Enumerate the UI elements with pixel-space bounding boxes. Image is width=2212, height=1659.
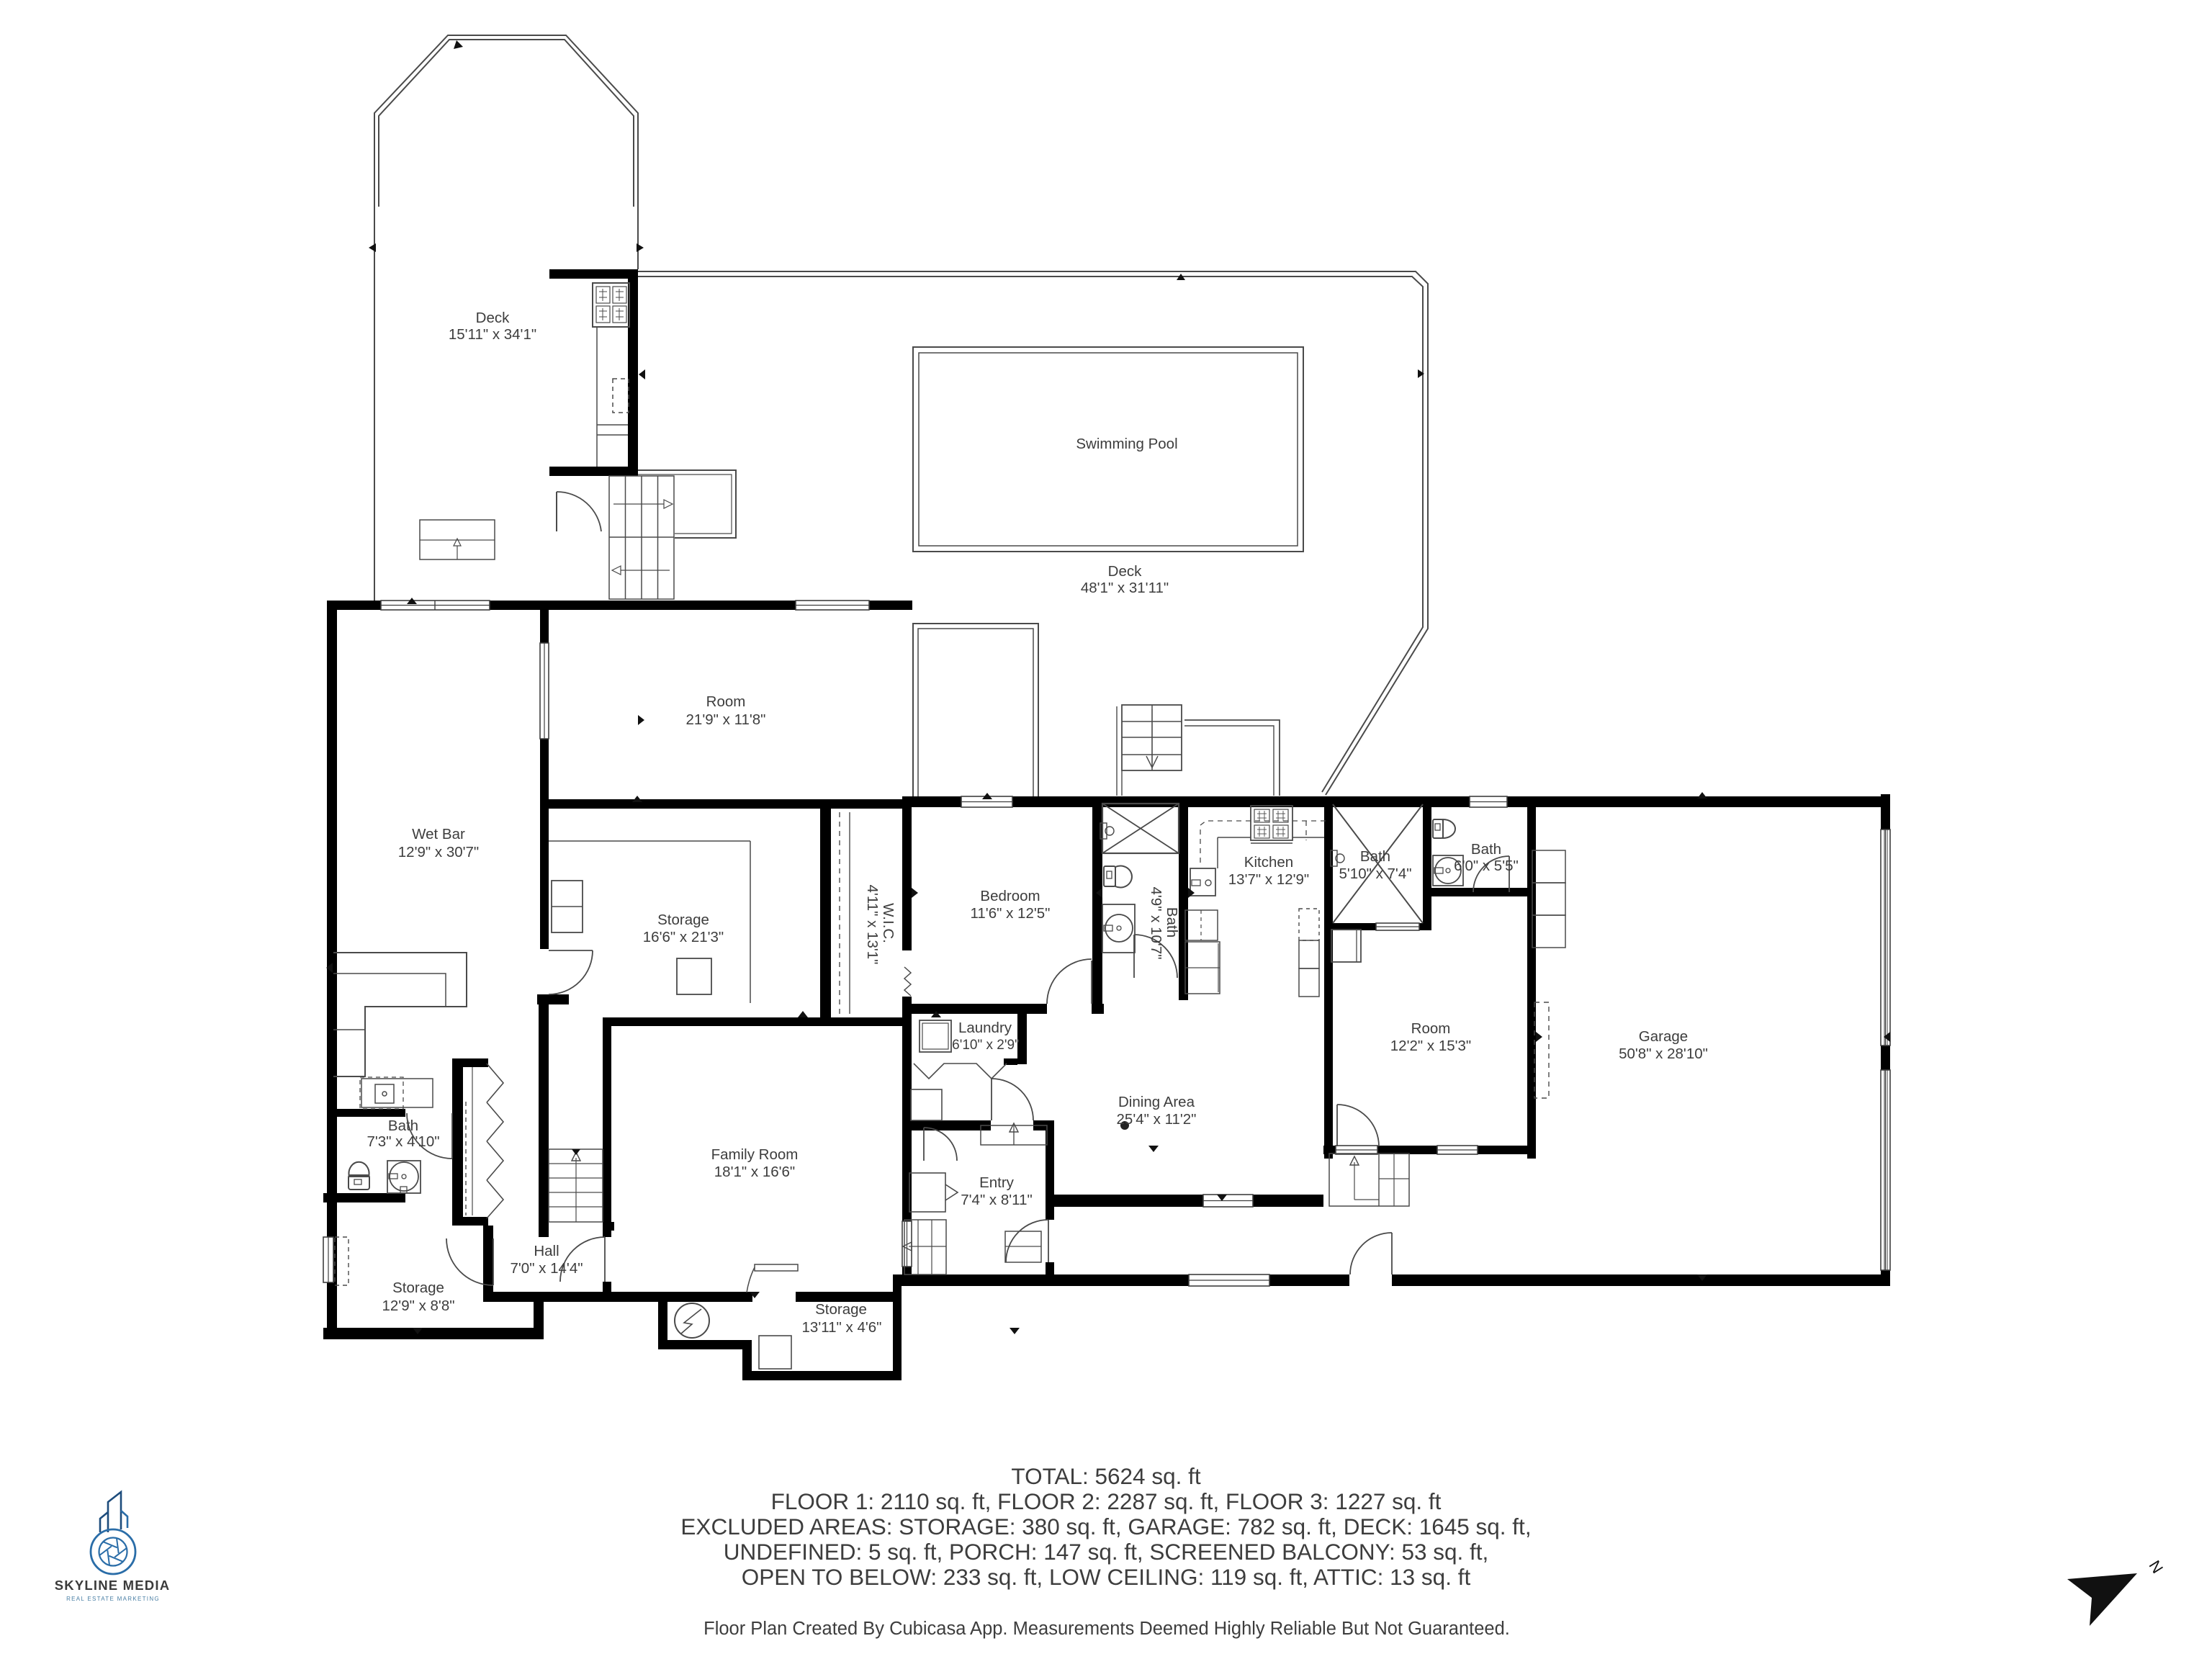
svg-text:Family Room: Family Room [711,1146,799,1163]
svg-text:13'11" x 4'6": 13'11" x 4'6" [802,1319,882,1336]
svg-text:Bath: Bath [1360,848,1390,865]
svg-text:12'9" x 8'8": 12'9" x 8'8" [382,1298,454,1314]
svg-text:Laundry: Laundry [958,1020,1012,1036]
svg-text:Garage: Garage [1639,1028,1688,1045]
svg-text:11'6" x 12'5": 11'6" x 12'5" [971,905,1051,922]
svg-text:12'9" x 30'7": 12'9" x 30'7" [398,844,479,860]
svg-text:6'10" x 2'9": 6'10" x 2'9" [952,1038,1020,1053]
svg-text:Kitchen: Kitchen [1244,854,1293,871]
svg-text:4'11" x 13'1": 4'11" x 13'1" [864,885,881,965]
svg-text:UNDEFINED: 5 sq. ft, PORCH: 14: UNDEFINED: 5 sq. ft, PORCH: 147 sq. ft, … [724,1539,1489,1565]
svg-text:50'8" x 28'10": 50'8" x 28'10" [1619,1046,1708,1062]
svg-text:Deck: Deck [1108,563,1142,580]
svg-text:Deck: Deck [476,310,510,326]
svg-text:Floor Plan Created By Cubicasa: Floor Plan Created By Cubicasa App. Meas… [703,1619,1510,1639]
svg-text:25'4" x 11'2": 25'4" x 11'2" [1117,1111,1197,1128]
svg-text:18'1" x 16'6": 18'1" x 16'6" [714,1164,795,1180]
svg-text:6'0" x 5'5": 6'0" x 5'5" [1454,858,1519,874]
svg-text:Bath: Bath [388,1118,418,1134]
svg-text:21'9" x 11'8": 21'9" x 11'8" [686,711,766,728]
svg-text:SKYLINE MEDIA: SKYLINE MEDIA [55,1578,171,1593]
svg-text:OPEN TO BELOW: 233 sq. ft, LOW: OPEN TO BELOW: 233 sq. ft, LOW CEILING: … [742,1564,1471,1590]
svg-text:Wet Bar: Wet Bar [412,826,465,842]
svg-text:12'2" x 15'3": 12'2" x 15'3" [1390,1038,1471,1054]
svg-text:Bedroom: Bedroom [980,888,1040,904]
svg-text:Hall: Hall [534,1243,559,1259]
svg-text:Bath: Bath [1471,841,1501,858]
svg-text:Swimming Pool: Swimming Pool [1076,436,1177,452]
svg-text:W.I.C.: W.I.C. [880,903,896,943]
svg-text:Room: Room [1411,1020,1451,1037]
svg-text:7'4" x 8'11": 7'4" x 8'11" [961,1192,1033,1208]
svg-text:Storage: Storage [815,1301,867,1318]
svg-text:5'10" x 7'4": 5'10" x 7'4" [1339,866,1411,882]
svg-text:Dining Area: Dining Area [1118,1094,1195,1110]
svg-text:7'3" x 4'10": 7'3" x 4'10" [367,1133,439,1150]
svg-text:4'9" x 10'7": 4'9" x 10'7" [1148,886,1164,959]
svg-text:16'6" x 21'3": 16'6" x 21'3" [643,929,724,945]
svg-text:FLOOR 1: 2110 sq. ft, FLOOR 2:: FLOOR 1: 2110 sq. ft, FLOOR 2: 2287 sq. … [771,1488,1442,1514]
svg-text:13'7" x 12'9": 13'7" x 12'9" [1228,871,1309,888]
svg-text:EXCLUDED AREAS: STORAGE: 380 s: EXCLUDED AREAS: STORAGE: 380 sq. ft, GAR… [680,1514,1531,1539]
svg-text:15'11" x 34'1": 15'11" x 34'1" [449,326,536,343]
svg-text:Storage: Storage [392,1280,444,1296]
svg-text:Storage: Storage [657,912,709,928]
svg-text:TOTAL: 5624 sq. ft: TOTAL: 5624 sq. ft [1011,1463,1200,1489]
svg-text:Entry: Entry [979,1174,1015,1191]
svg-text:7'0" x 14'4": 7'0" x 14'4" [510,1260,583,1277]
svg-text:Bath: Bath [1164,907,1180,938]
svg-text:Room: Room [706,693,746,710]
svg-text:REAL ESTATE MARKETING: REAL ESTATE MARKETING [66,1596,160,1602]
svg-text:48'1" x 31'11": 48'1" x 31'11" [1081,580,1169,596]
